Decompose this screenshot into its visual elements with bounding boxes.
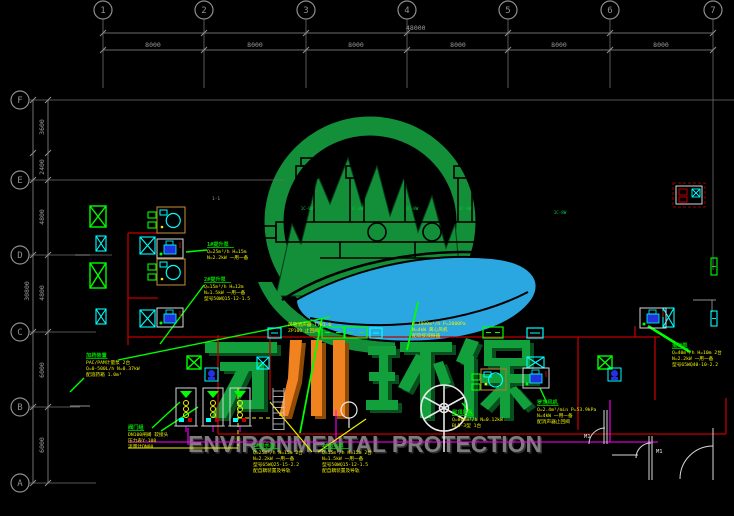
dim-label: 3600 (38, 119, 46, 135)
status-dot (161, 278, 164, 281)
annotation-line: Q=15m³/h H=12m 2台 (322, 449, 372, 456)
fan-inlet (160, 210, 167, 215)
annotation-line: 配自耦装置及导轨 (253, 467, 291, 474)
grid-bubble-label: 2 (201, 6, 206, 16)
pump-body (164, 245, 176, 254)
door-label: M1 (656, 449, 663, 455)
dim-label: 8000 (348, 41, 364, 49)
dim-label-overall: 30800 (23, 281, 31, 301)
annotation-line: 压力表Y-100 (128, 437, 156, 444)
annotation-line: 流量计DN80 (128, 443, 154, 450)
annotation-line: N=1.5kW 一用一备 (204, 289, 246, 296)
watermark-cn-text: ENVIRONMENTAL PROTECTION ENVIRONMENTAL P… (188, 338, 544, 459)
pump-status-dot (643, 323, 646, 326)
duct-label: 1C-8W (301, 206, 314, 211)
pump-status-dot (526, 383, 529, 386)
pump-motor (166, 241, 173, 245)
pump-body (164, 314, 176, 323)
pump-body (647, 314, 659, 323)
door-label: M1 (584, 434, 591, 440)
dim-label: 8000 (145, 41, 161, 49)
annotation-line: N=4kW 离心风机 (412, 326, 448, 333)
flex-connector (148, 274, 156, 280)
valve-handle (184, 407, 189, 412)
grid-bubble-label: 4 (404, 6, 409, 16)
annotation-line: Q=25m³/h H=15m 2台 (253, 449, 303, 456)
cad-drawing[interactable]: ENVIRONMENTAL PROTECTION ENVIRONMENTAL P… (0, 0, 734, 516)
misc-label: 1-1 (212, 196, 220, 202)
annotation-line: Q=25m³/h H=15m (207, 249, 247, 255)
fan-scroll-icon (166, 266, 180, 280)
dim-label: 8000 (551, 41, 567, 49)
annotation-line: 配溶药箱 1.0m³ (86, 371, 122, 378)
annotation-title: 1#提升泵 (207, 240, 230, 248)
annotation-line: N=2.2kW 一用一备 (207, 254, 249, 261)
rack-fitting (179, 418, 184, 422)
annotation-title: 2#污水泵 (322, 441, 345, 449)
annotation-line: 型号50WQ15-12-1.5 (322, 461, 368, 468)
duct-label: 1C-8W (406, 206, 419, 211)
pump-body (530, 374, 542, 383)
duct-label: 1C-8W (554, 210, 567, 215)
cad-canvas[interactable]: ENVIRONMENTAL PROTECTION ENVIRONMENTAL P… (0, 0, 734, 516)
rack-fitting (242, 418, 246, 422)
annotation-title: 阀门组 (128, 423, 144, 431)
dim-label: 8000 (450, 41, 466, 49)
status-dot (161, 226, 164, 229)
grid-bubble-label: F (17, 96, 22, 106)
dim-label: 8000 (247, 41, 263, 49)
annotation-line: N=1.5kW 一用一备 (322, 455, 364, 462)
flex-connector (148, 264, 156, 270)
annotation-line: Q=40m³/h H=10m 2台 (672, 349, 722, 356)
annotation-title: 罗茨风机 (537, 398, 559, 406)
pump-motor (166, 310, 173, 314)
pump-status-dot (160, 253, 163, 256)
rack-fitting (215, 418, 219, 422)
annotation-line: ZP100 止回阀 (288, 327, 319, 334)
fan-inlet (160, 262, 167, 267)
annotation-line: Q=3000m³/h P=2000Pa (412, 321, 466, 327)
fan-scroll-icon (166, 214, 180, 228)
annotation-line: Q=2.4m³/min P=53.9kPa (537, 407, 596, 413)
flex-connector (148, 222, 156, 228)
grid-bubble-label: 3 (303, 6, 308, 16)
dim-label: 4800 (38, 209, 46, 225)
grid-bubble-label: 6 (607, 6, 612, 16)
grid-bubble-label: D (17, 251, 22, 261)
ctrl-cell (679, 189, 687, 195)
annotation-line: 配软接减振器 (412, 332, 440, 339)
rack-fitting (206, 418, 211, 422)
valve-handle (211, 407, 216, 412)
dim-label: 2400 (38, 159, 46, 175)
pump-motor (649, 310, 656, 314)
grid-bubble-label: A (17, 479, 23, 489)
grid-bubble-label: C (17, 328, 22, 338)
duct-label: 1C-8W (351, 206, 364, 211)
annotation-line: 风管消声器 T701-6 (288, 321, 331, 328)
pump-status-dot (160, 322, 163, 325)
small-pump-base (208, 377, 215, 380)
annotation-line: N=2.2kW 一用一备 (253, 455, 295, 462)
valve-handle (238, 413, 243, 418)
rack-fitting (188, 418, 192, 422)
rack-triangle (180, 391, 192, 398)
annotation-title: 1#污水泵 (253, 441, 276, 449)
dim-label: 6000 (38, 362, 46, 378)
annotation-line: PAC/PAM计量泵 2台 (86, 359, 130, 366)
annotation-line: N=4kW 一用一备 (537, 412, 573, 419)
annotation-line: 配消声器止回阀 (537, 418, 570, 425)
dim-label: 8000 (653, 41, 669, 49)
rack-triangle (207, 391, 219, 398)
annotation-line: Q=800m³/h N=0.12kW (452, 417, 503, 423)
grid-bubble-label: E (17, 176, 22, 186)
small-pump-body (208, 370, 215, 377)
annotation-title: 加药装置 (85, 351, 107, 359)
annotation-line: Q=15m³/h H=12m (204, 284, 244, 290)
grid-bubble-label: B (17, 403, 22, 413)
door-swing-corner (680, 446, 713, 479)
small-pump-body (611, 370, 618, 377)
annotation-line: DN100闸阀 软接头 (128, 431, 169, 438)
annotation-title: 2#提升泵 (204, 275, 227, 283)
annotation-line: 配自耦装置及导轨 (322, 467, 360, 474)
annotation-line: 型号65WQ25-15-2.2 (253, 461, 299, 468)
annotation-line: N=2.2kW 一用一备 (672, 355, 714, 362)
annotation-line: Q=0-500L/h N=0.37kW (86, 366, 140, 372)
valve-handle (184, 401, 189, 406)
valve-handle (211, 401, 216, 406)
leader-line (186, 250, 207, 252)
small-pump-base (611, 377, 618, 380)
status-dot (485, 383, 488, 386)
dim-label: 6000 (38, 437, 46, 453)
annotation-title: 潜污泵 (672, 341, 688, 349)
grid-bubble-label: 7 (710, 6, 715, 16)
annotation-line: 型号65WQ40-10-2.2 (672, 361, 718, 368)
ctrl-cell (679, 197, 687, 202)
pump-motor (532, 370, 539, 374)
rack-fitting (233, 418, 238, 422)
duct-label: 1C-8W (459, 206, 472, 211)
leader-line (70, 378, 84, 392)
dim-label: 4800 (38, 285, 46, 301)
annotation-line: 型号50WQ15-12-1.5 (204, 295, 250, 302)
annotation-title: 屋顶风机 (452, 408, 474, 416)
grid-bubble-label: 1 (100, 6, 105, 16)
wm-char-chuan (279, 340, 345, 416)
flex-connector (148, 212, 156, 218)
grid-bubble-label: 5 (505, 6, 510, 16)
annotation-line: BLD-3型 1台 (452, 422, 481, 429)
